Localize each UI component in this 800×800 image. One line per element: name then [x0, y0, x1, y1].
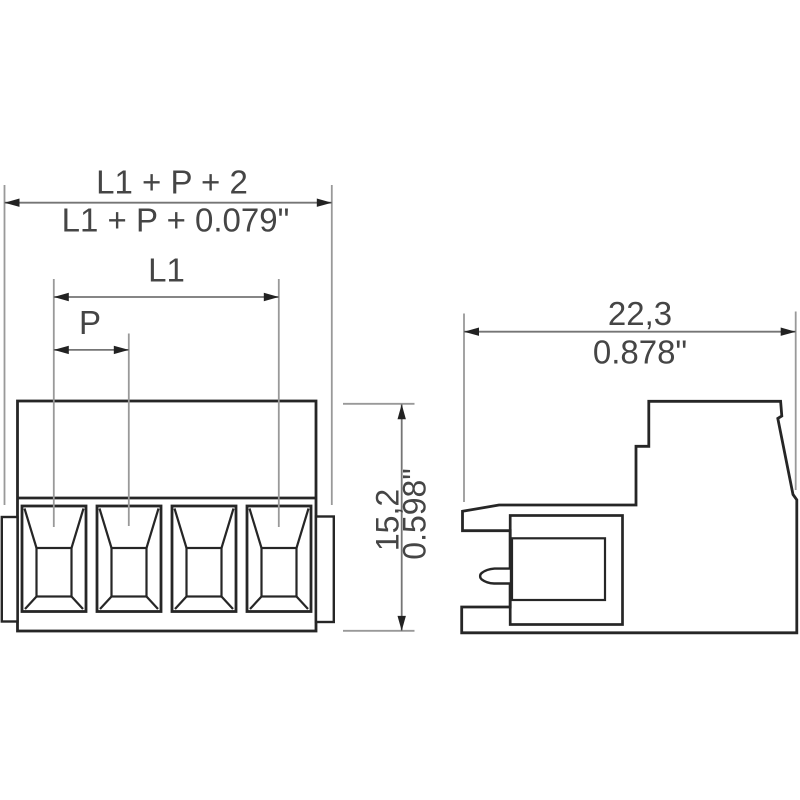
svg-text:0.598": 0.598"	[397, 468, 433, 559]
svg-text:L1 + P + 2: L1 + P + 2	[96, 164, 248, 201]
svg-text:L1: L1	[148, 252, 185, 289]
svg-text:P: P	[79, 304, 101, 341]
svg-text:22,3: 22,3	[608, 295, 672, 332]
svg-text:0.878": 0.878"	[593, 334, 687, 371]
svg-text:L1 + P + 0.079": L1 + P + 0.079"	[62, 202, 290, 239]
